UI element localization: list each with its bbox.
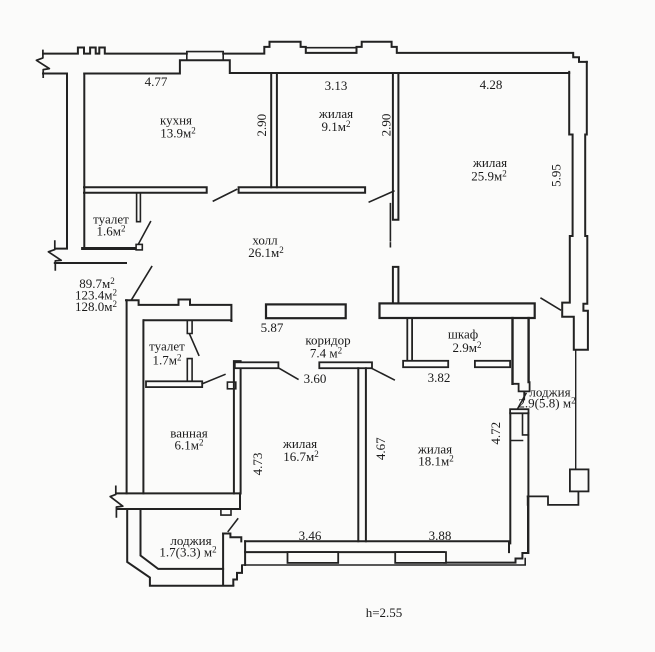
svg-text:16.7м2: 16.7м2 [283,449,318,464]
svg-text:4.73: 4.73 [250,453,265,476]
svg-text:3.13: 3.13 [325,78,348,93]
svg-text:1.7(3.3) м2: 1.7(3.3) м2 [159,545,216,560]
svg-text:2.90: 2.90 [379,114,394,137]
svg-text:7.4 м2: 7.4 м2 [310,346,342,361]
svg-text:26.1м2: 26.1м2 [248,245,283,260]
svg-text:4.28: 4.28 [480,77,503,92]
svg-text:128.0м2: 128.0м2 [75,299,117,314]
svg-text:5.95: 5.95 [549,164,564,187]
svg-text:4.72: 4.72 [488,422,503,445]
svg-text:туалет: туалет [149,339,185,354]
svg-text:4.77: 4.77 [145,74,168,89]
svg-text:18.1м2: 18.1м2 [418,454,453,469]
svg-text:h=2.55: h=2.55 [366,605,403,620]
svg-text:5.87: 5.87 [261,320,284,335]
svg-text:3.82: 3.82 [428,370,451,385]
svg-text:2.9(5.8) м2: 2.9(5.8) м2 [518,396,575,411]
svg-text:4.67: 4.67 [373,437,388,460]
svg-text:3.46: 3.46 [299,528,322,543]
svg-text:3.60: 3.60 [304,371,327,386]
svg-text:3.88: 3.88 [429,528,452,543]
svg-text:13.9м2: 13.9м2 [160,126,195,141]
svg-text:25.9м2: 25.9м2 [471,169,506,184]
svg-text:2.90: 2.90 [254,114,269,137]
